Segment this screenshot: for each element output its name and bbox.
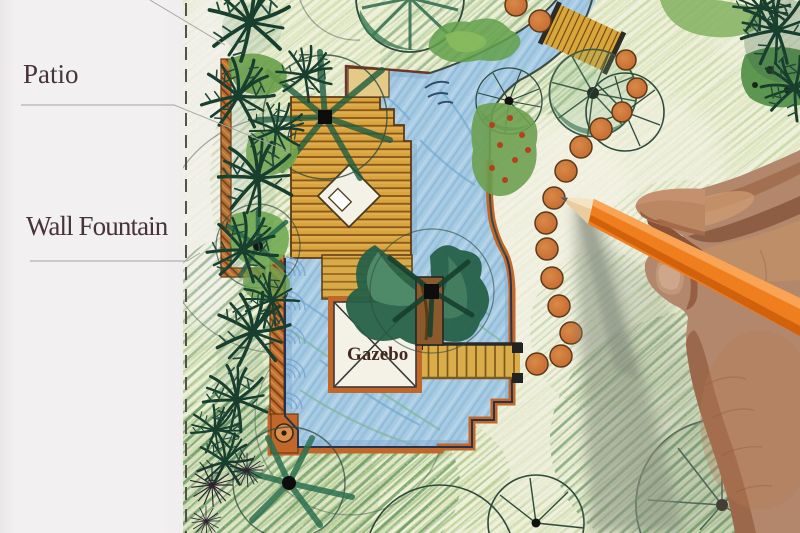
svg-text:Wall Fountain: Wall Fountain bbox=[26, 211, 169, 241]
svg-text:Patio: Patio bbox=[23, 59, 79, 89]
svg-text:Gazebo: Gazebo bbox=[347, 344, 408, 365]
